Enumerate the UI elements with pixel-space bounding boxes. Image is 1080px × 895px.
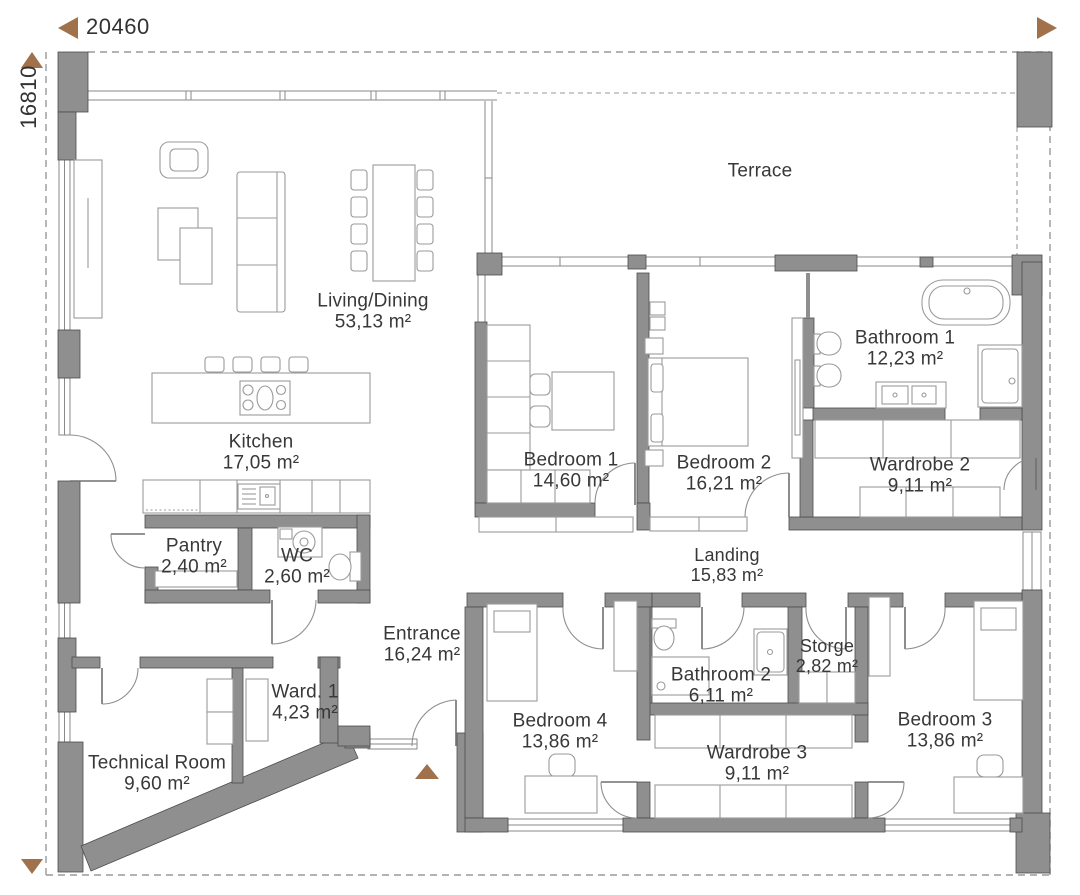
room-label-terrace: Terrace: [728, 160, 793, 181]
room-area: 53,13 m²: [317, 312, 428, 333]
room-area: 16,24 m²: [383, 645, 461, 666]
room-label-wardrobe2: Wardrobe 2 9,11 m²: [870, 455, 971, 498]
dimension-width-label: 20460: [86, 14, 150, 40]
room-name: Living/Dining: [317, 291, 428, 312]
wall-pillar-terrace: [1017, 52, 1052, 127]
door-technical-room: [102, 668, 138, 704]
vanity-bathroom1: [876, 382, 946, 408]
room-name: Bathroom 2: [671, 665, 771, 686]
room-name: Bedroom 2: [677, 453, 772, 474]
door-pantry: [111, 534, 145, 568]
dining-table: [351, 165, 433, 281]
door-bedroom4: [563, 607, 603, 649]
room-label-bathroom1: Bathroom 1 12,23 m²: [855, 328, 955, 371]
room-name: Ward. 1: [271, 682, 338, 703]
door-bathroom2: [702, 607, 744, 649]
room-area: 14,60 m²: [524, 471, 619, 492]
room-area: 2,82 m²: [796, 656, 858, 676]
room-name: Bedroom 1: [524, 450, 619, 471]
room-area: 17,05 m²: [223, 453, 300, 474]
sideboard: [74, 160, 102, 318]
room-label-storge: Storge 2,82 m²: [796, 636, 858, 676]
room-name: Entrance: [383, 624, 461, 645]
room-label-wardrobe3: Wardrobe 3 9,11 m²: [707, 743, 808, 786]
sofa: [237, 172, 285, 312]
room-name: Terrace: [728, 160, 793, 181]
room-name: Wardrobe 2: [870, 455, 971, 476]
room-name: Bedroom 3: [898, 710, 993, 731]
room-label-pantry: Pantry 2,40 m²: [161, 536, 227, 579]
dimension-arrow-down-icon: [21, 859, 43, 874]
bathtub: [922, 280, 1010, 325]
room-area: 12,23 m²: [855, 349, 955, 370]
technical-units: [207, 679, 233, 744]
door-wc: [272, 600, 316, 644]
bedroom2-furniture: [645, 302, 803, 531]
entry-arrow-icon: [415, 764, 439, 779]
door-wardrobe3-right: [868, 782, 904, 818]
door-living-side: [70, 435, 116, 481]
wall-pillar-top-left: [58, 52, 88, 112]
dimension-arrow-left-icon: [58, 17, 78, 39]
door-bedroom3: [905, 607, 945, 649]
room-name: WC: [264, 546, 330, 567]
room-area: 6,11 m²: [671, 686, 771, 707]
room-area: 16,21 m²: [677, 474, 772, 495]
room-name: Storge: [796, 636, 858, 656]
room-label-bedroom3: Bedroom 3 13,86 m²: [898, 710, 993, 753]
room-name: Pantry: [161, 536, 227, 557]
door-wardrobe3-left: [601, 782, 637, 818]
room-name: Bedroom 4: [513, 711, 608, 732]
room-label-ward1: Ward. 1 4,23 m²: [271, 682, 338, 725]
room-area: 4,23 m²: [271, 703, 338, 724]
coffee-tables: [158, 208, 212, 284]
storge-shelves: [799, 672, 855, 703]
floor-plan-page: 20460 16810 Living/Dining 53,13 m² Kitch…: [0, 0, 1080, 895]
landing-closets: [479, 517, 633, 532]
room-label-entrance: Entrance 16,24 m²: [383, 624, 461, 667]
room-name: Wardrobe 3: [707, 743, 808, 764]
dimension-height-label: 16810: [16, 65, 42, 129]
room-label-technical: Technical Room 9,60 m²: [88, 753, 226, 796]
room-name: Technical Room: [88, 753, 226, 774]
shower-bathroom1: [978, 345, 1022, 407]
toilet-wc: [329, 552, 361, 581]
room-area: 9,11 m²: [870, 476, 971, 497]
room-name: Kitchen: [223, 432, 300, 453]
kitchen-counter: [143, 480, 370, 513]
room-area: 13,86 m²: [513, 732, 608, 753]
door-entrance: [412, 700, 456, 746]
armchair: [160, 142, 208, 178]
dimension-arrow-right-icon: [1037, 17, 1057, 39]
ward1-closet: [246, 679, 268, 741]
room-area: 2,60 m²: [264, 567, 330, 588]
room-area: 2,40 m²: [161, 557, 227, 578]
room-area: 13,86 m²: [898, 731, 993, 752]
bedroom3-furniture: [869, 597, 1023, 813]
room-area: 9,11 m²: [707, 764, 808, 785]
room-label-kitchen: Kitchen 17,05 m²: [223, 432, 300, 475]
kitchen-island: [152, 357, 370, 423]
room-name: Landing: [691, 545, 764, 565]
room-area: 15,83 m²: [691, 565, 764, 585]
room-label-bedroom2: Bedroom 2 16,21 m²: [677, 453, 772, 496]
room-label-bathroom2: Bathroom 2 6,11 m²: [671, 665, 771, 708]
room-label-bedroom4: Bedroom 4 13,86 m²: [513, 711, 608, 754]
room-label-living: Living/Dining 53,13 m²: [317, 291, 428, 334]
room-label-wc: WC 2,60 m²: [264, 546, 330, 589]
toilet-bidet-bathroom1: [814, 332, 841, 387]
room-label-landing: Landing 15,83 m²: [691, 545, 764, 585]
room-name: Bathroom 1: [855, 328, 955, 349]
room-area: 9,60 m²: [88, 774, 226, 795]
room-label-bedroom1: Bedroom 1 14,60 m²: [524, 450, 619, 493]
